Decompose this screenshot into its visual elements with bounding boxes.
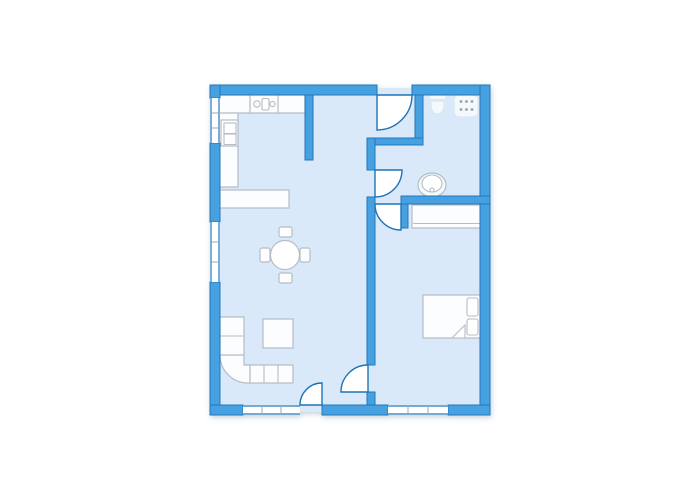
wall-right (480, 85, 490, 415)
toilet-tank (429, 95, 446, 100)
kitchen-island-counter (219, 190, 289, 208)
stove-element-center (262, 99, 269, 111)
kitchen-sink-basin-bottom (224, 134, 236, 145)
wall-left-mid (210, 143, 220, 222)
dining-chair-east (300, 248, 310, 262)
shower-tray (454, 95, 478, 117)
dining-chair-south (279, 273, 292, 283)
shower-dot-4 (460, 108, 463, 111)
stove-burner-left (254, 101, 260, 107)
wall-bathroom-west (415, 95, 423, 138)
wall-bathroom-north-jog (368, 138, 423, 145)
kitchen-sink-basin-top (224, 123, 236, 134)
wall-left-top (210, 85, 220, 98)
wall-divider-bottom (367, 392, 375, 405)
coffee-table (263, 319, 293, 348)
floor-plan-svg (0, 0, 700, 500)
wardrobe (412, 205, 481, 228)
stove-burner-right (270, 101, 275, 106)
washbasin-inner (422, 175, 442, 192)
shower-dot-1 (460, 100, 463, 103)
shower-dot-3 (471, 100, 474, 103)
wall-bottom-west (210, 405, 243, 415)
bed-pillow-top (467, 298, 478, 316)
wall-bottom-mid (322, 405, 388, 415)
wall-bottom-east (448, 405, 490, 415)
wall-top-east (412, 85, 490, 95)
sofa-arm-bottom (250, 365, 293, 383)
apartment-floor (213, 88, 487, 412)
dining-chair-west (260, 248, 270, 262)
wall-bedroom-stub (401, 204, 408, 228)
shower-dot-5 (465, 108, 468, 111)
wall-bathroom-south (401, 196, 490, 204)
toilet-bowl (431, 101, 444, 114)
wall-left-bottom (210, 282, 220, 415)
shower-dot-6 (471, 108, 474, 111)
wall-divider-mid (367, 197, 375, 365)
wall-top-west (210, 85, 377, 95)
wall-kitchen-stub (305, 95, 313, 160)
shower-dot-2 (465, 100, 468, 103)
dining-chair-north (279, 227, 292, 237)
floor-layer (213, 88, 487, 412)
bed-pillow-bottom (467, 319, 478, 335)
dining-table (271, 241, 300, 270)
wall-divider-top (367, 138, 375, 170)
floor-plan-canvas (0, 0, 700, 500)
